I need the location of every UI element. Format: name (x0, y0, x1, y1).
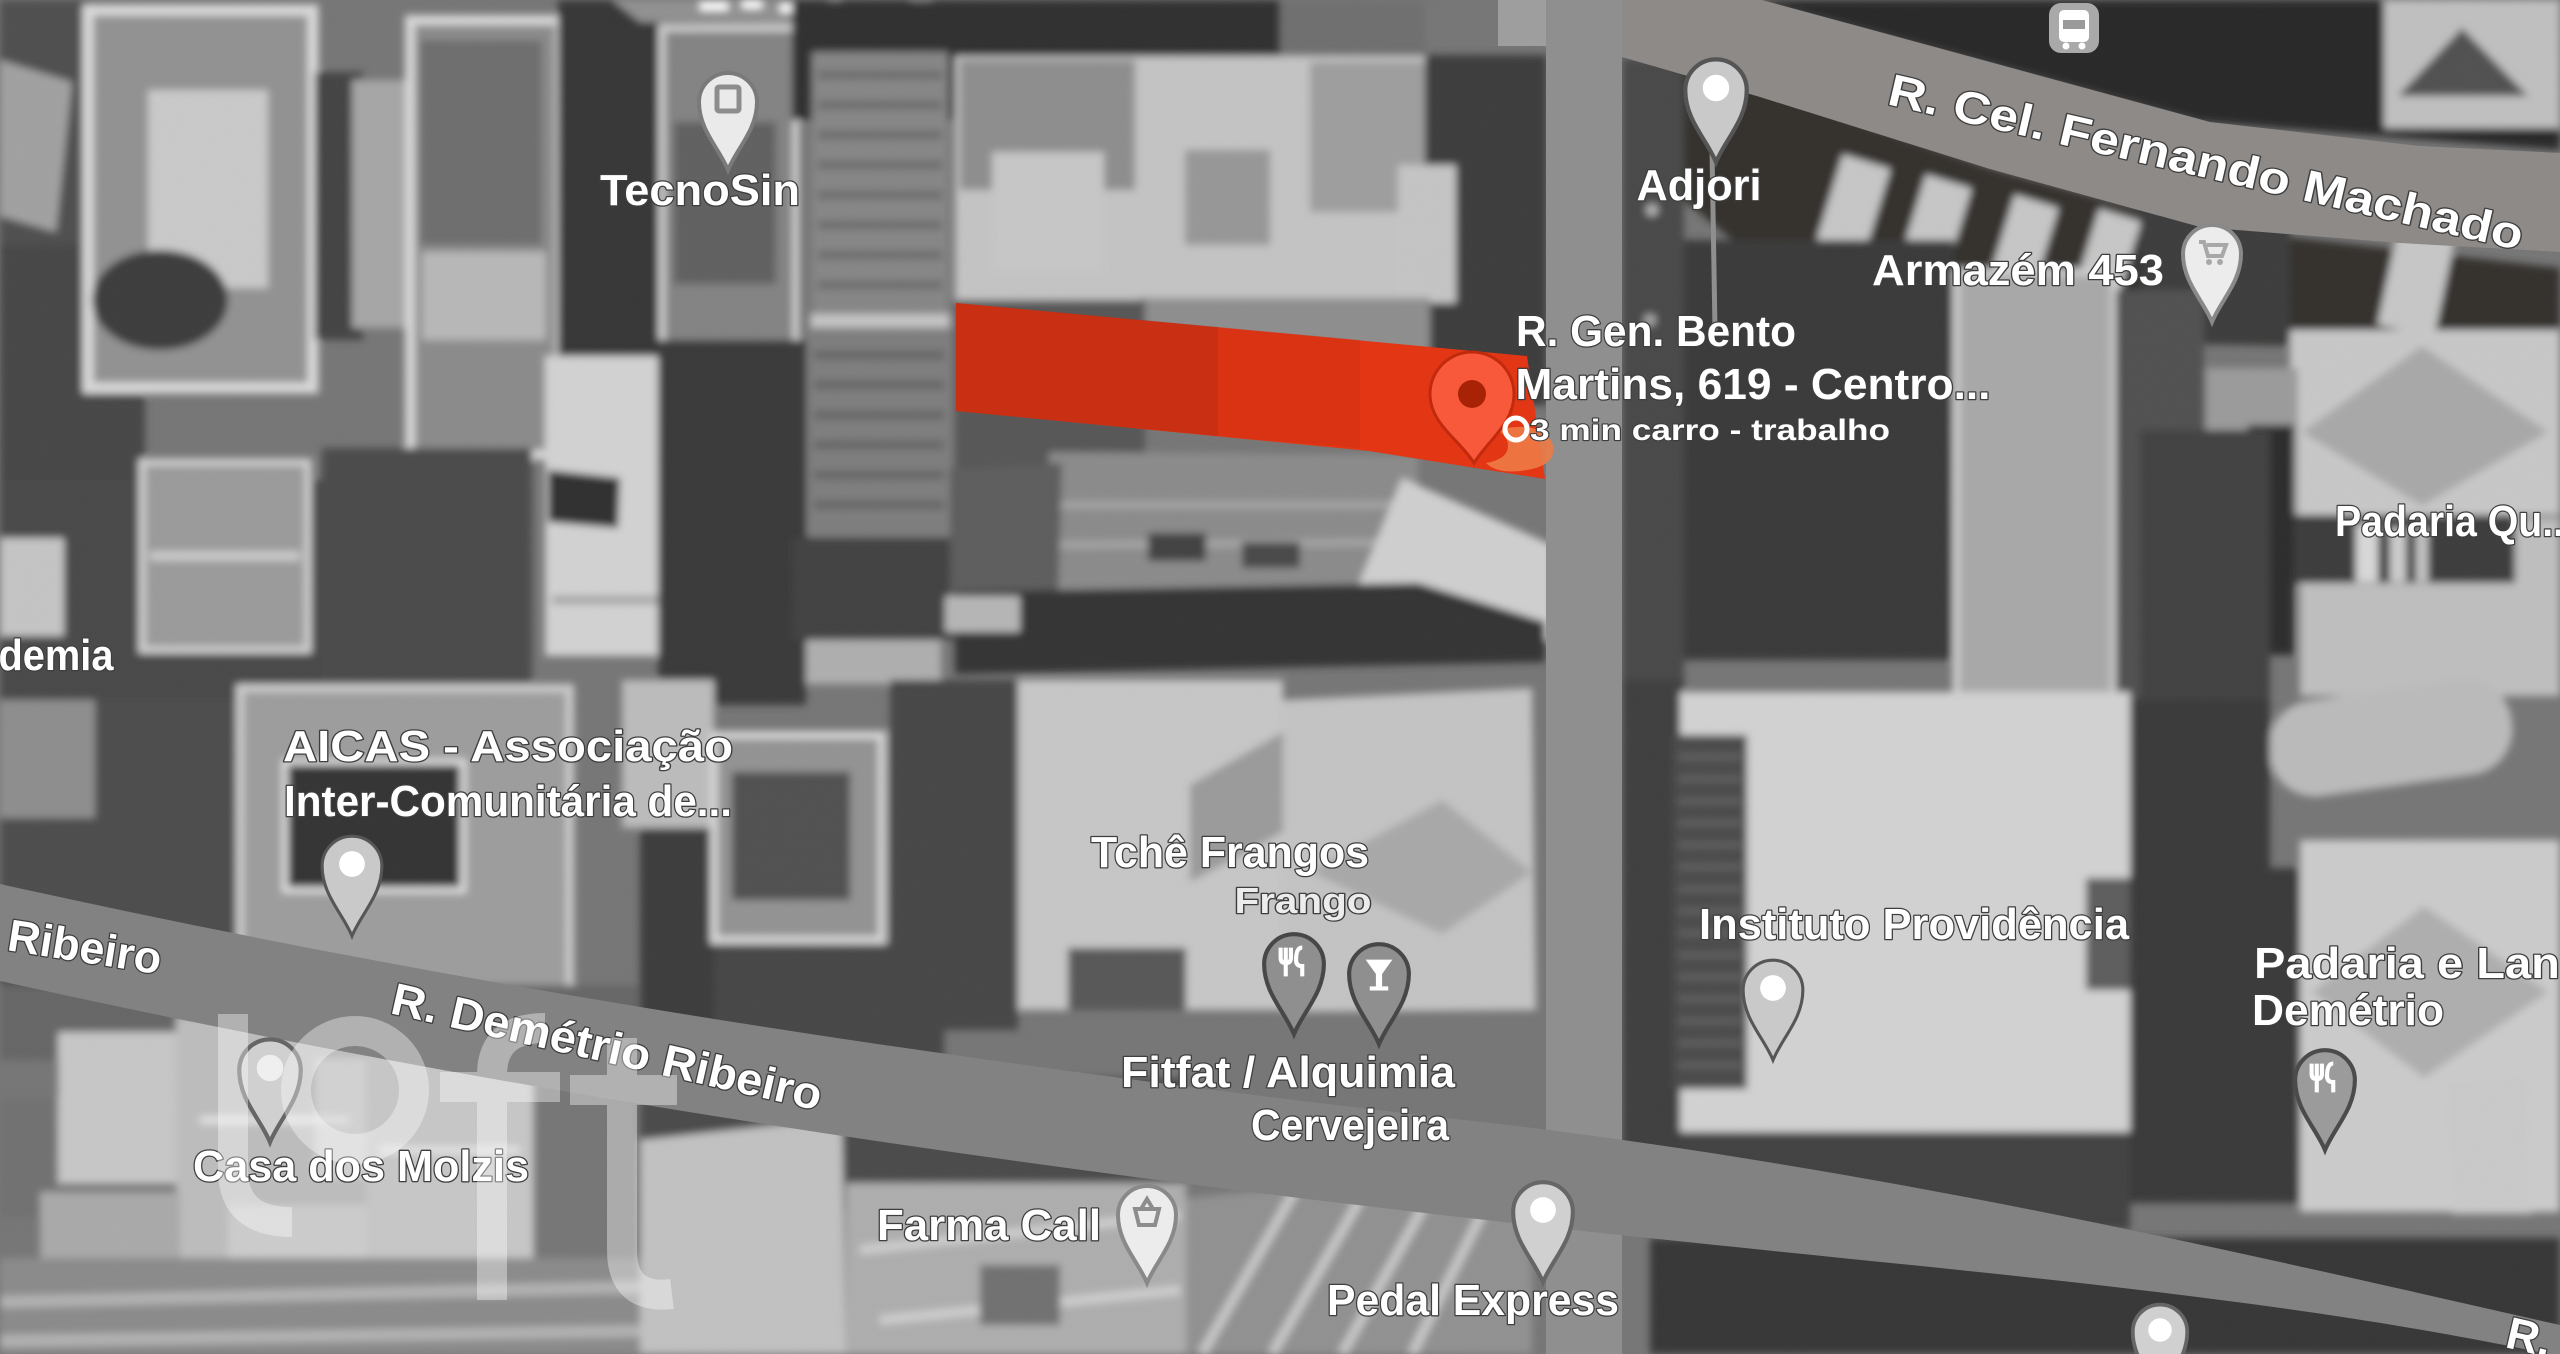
svg-text:Inter-Comunitária de...: Inter-Comunitária de... (284, 777, 732, 826)
svg-text:Fitfat / Alquimia: Fitfat / Alquimia (1121, 1048, 1456, 1097)
svg-text:Frango: Frango (1235, 880, 1372, 921)
svg-text:demia: demia (0, 631, 114, 680)
svg-text:Adjori: Adjori (1637, 161, 1762, 210)
svg-text:Pedal Express: Pedal Express (1327, 1276, 1619, 1325)
svg-text:Padaria Qu...: Padaria Qu... (2335, 497, 2560, 546)
svg-text:TecnoSin: TecnoSin (600, 166, 800, 215)
svg-text:R. Gen. Bento: R. Gen. Bento (1516, 307, 1796, 356)
svg-text:Padaria e Lanc: Padaria e Lanc (2254, 939, 2560, 988)
svg-text:Armazém 453: Armazém 453 (1872, 246, 2164, 295)
svg-text:3 min carro - trabalho: 3 min carro - trabalho (1530, 414, 1890, 447)
svg-text:Tchê Frangos: Tchê Frangos (1091, 828, 1369, 877)
svg-text:AICAS - Associação: AICAS - Associação (283, 722, 733, 771)
svg-text:Cervejeira: Cervejeira (1251, 1101, 1449, 1150)
svg-text:Martins, 619 - Centro...: Martins, 619 - Centro... (1516, 360, 1991, 409)
svg-text:Demétrio: Demétrio (2252, 986, 2444, 1035)
svg-text:Instituto Providência: Instituto Providência (1699, 900, 2130, 949)
svg-text:Farma Call: Farma Call (877, 1201, 1101, 1250)
